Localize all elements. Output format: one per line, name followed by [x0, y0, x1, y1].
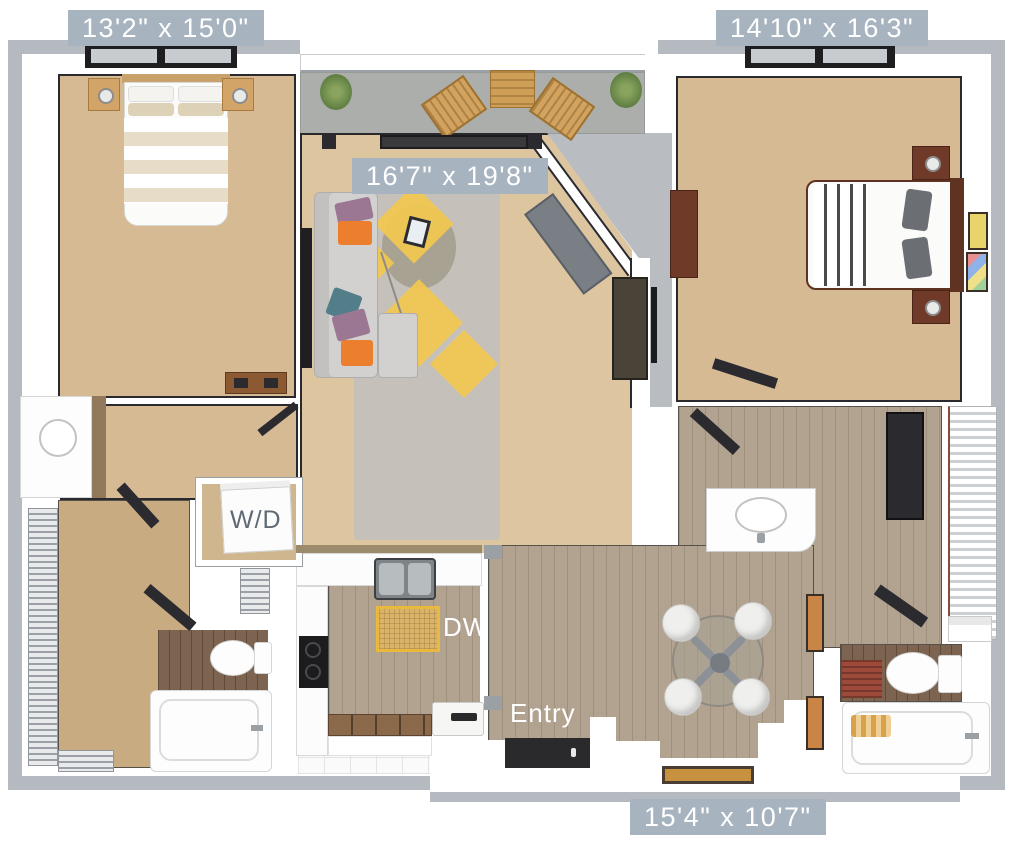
- nightstand: [88, 78, 120, 111]
- towel: [851, 715, 891, 737]
- wall-art: [806, 696, 824, 750]
- nightstand: [912, 146, 950, 180]
- faucet: [757, 533, 765, 543]
- pillow-orange: [338, 221, 372, 245]
- wardrobe: [886, 412, 924, 520]
- pillow: [128, 86, 174, 102]
- nightstand: [912, 290, 950, 324]
- tub-faucet: [251, 725, 263, 731]
- striped-duvet: [124, 118, 228, 204]
- sofa-chaise: [378, 313, 418, 378]
- bedroom2-dimension-label: 14'10" x 16'3": [716, 10, 928, 46]
- plant: [320, 74, 352, 110]
- bedroom2-window: [745, 44, 895, 68]
- kitchen-counter-back: [296, 545, 482, 553]
- burner: [305, 664, 321, 680]
- wall-tv: [301, 228, 312, 368]
- bathtub: [150, 690, 272, 772]
- pillow-accent: [128, 103, 174, 116]
- plant: [610, 72, 642, 108]
- toilet-bowl: [210, 640, 256, 676]
- bathroom1-vanity: [20, 396, 92, 498]
- floor-plan: W/D 13'2" x 15'0" 14'10" x 16'3" 16'7" x…: [0, 0, 1013, 844]
- wall-cap: [484, 696, 502, 710]
- media-console: [612, 277, 648, 380]
- dresser: [670, 190, 698, 278]
- bath-mat-red: [842, 660, 882, 698]
- kitchen-base-cabinets: [328, 714, 432, 736]
- right-closet-shelves: [948, 406, 997, 640]
- door-handle-bar: [651, 287, 657, 363]
- dining-chair: [662, 604, 700, 642]
- striped-duvet2: [814, 184, 868, 286]
- sink: [735, 497, 787, 533]
- window-pane: [823, 49, 887, 63]
- dishwasher-label: DW: [443, 612, 488, 643]
- vanity-cabinet-tower: [92, 396, 106, 498]
- burner: [305, 642, 321, 658]
- gray-pillow: [901, 188, 932, 231]
- kitchen-base-front: [328, 736, 432, 756]
- bedroom1-window: [85, 44, 237, 68]
- toilet-tank: [938, 655, 962, 693]
- tub-faucet: [965, 733, 979, 739]
- toilet: [210, 636, 272, 680]
- wall-art: [966, 252, 988, 292]
- sink-basin: [379, 563, 404, 595]
- balcony-railing: [300, 54, 647, 72]
- doormat: [662, 766, 754, 784]
- louver-vent: [240, 568, 270, 614]
- dining-chair: [732, 678, 770, 716]
- bed2: [806, 178, 964, 292]
- bathroom2-vanity: [706, 488, 816, 552]
- entry-label: Entry: [510, 698, 576, 729]
- stove: [299, 636, 328, 688]
- toilet-tank: [254, 642, 272, 674]
- nightstand: [222, 78, 254, 111]
- dining-dimension-label: 15'4" x 10'7": [630, 799, 826, 835]
- bathtub: [842, 702, 990, 774]
- window-pane: [91, 49, 157, 63]
- wd-label: W/D: [230, 506, 282, 535]
- balcony-right-wall: [645, 54, 672, 134]
- door-jamb: [322, 135, 336, 149]
- toilet-bowl: [886, 652, 940, 694]
- dining-chair: [734, 602, 772, 640]
- kitchen-cart: [432, 702, 484, 736]
- patio-table: [490, 70, 535, 108]
- sink-basin: [408, 563, 431, 595]
- bench: [225, 372, 287, 394]
- tub-inner: [159, 699, 259, 761]
- pillow: [178, 86, 224, 102]
- cart-handle: [451, 713, 477, 721]
- kitchen-sink: [374, 558, 436, 600]
- pillow-accent: [178, 103, 224, 116]
- door-jamb: [528, 135, 542, 149]
- bath2-shelf-niche: [948, 616, 992, 642]
- toilet: [886, 650, 964, 698]
- mirrored-closet-doors: [28, 508, 58, 766]
- entry-door-mat: [505, 738, 590, 768]
- headboard2: [950, 178, 964, 292]
- door-handle: [571, 748, 576, 757]
- wall-art: [806, 594, 824, 652]
- living-dimension-label: 16'7" x 19'8": [352, 158, 548, 194]
- wall-cap: [484, 545, 502, 559]
- gray-pillow: [901, 236, 932, 279]
- window-pane: [165, 49, 231, 63]
- pillow-orange: [341, 340, 373, 366]
- dishwasher-mat: [376, 606, 440, 652]
- bedroom1-dimension-label: 13'2" x 15'0": [68, 10, 264, 46]
- table-hub: [710, 653, 730, 673]
- sink: [39, 419, 77, 457]
- bed-queen: [122, 74, 230, 226]
- window-pane: [751, 49, 815, 63]
- balcony-sliding-door: [380, 135, 528, 149]
- wall-art: [968, 212, 988, 250]
- floor-vent: [58, 750, 114, 772]
- dining-chair: [664, 678, 702, 716]
